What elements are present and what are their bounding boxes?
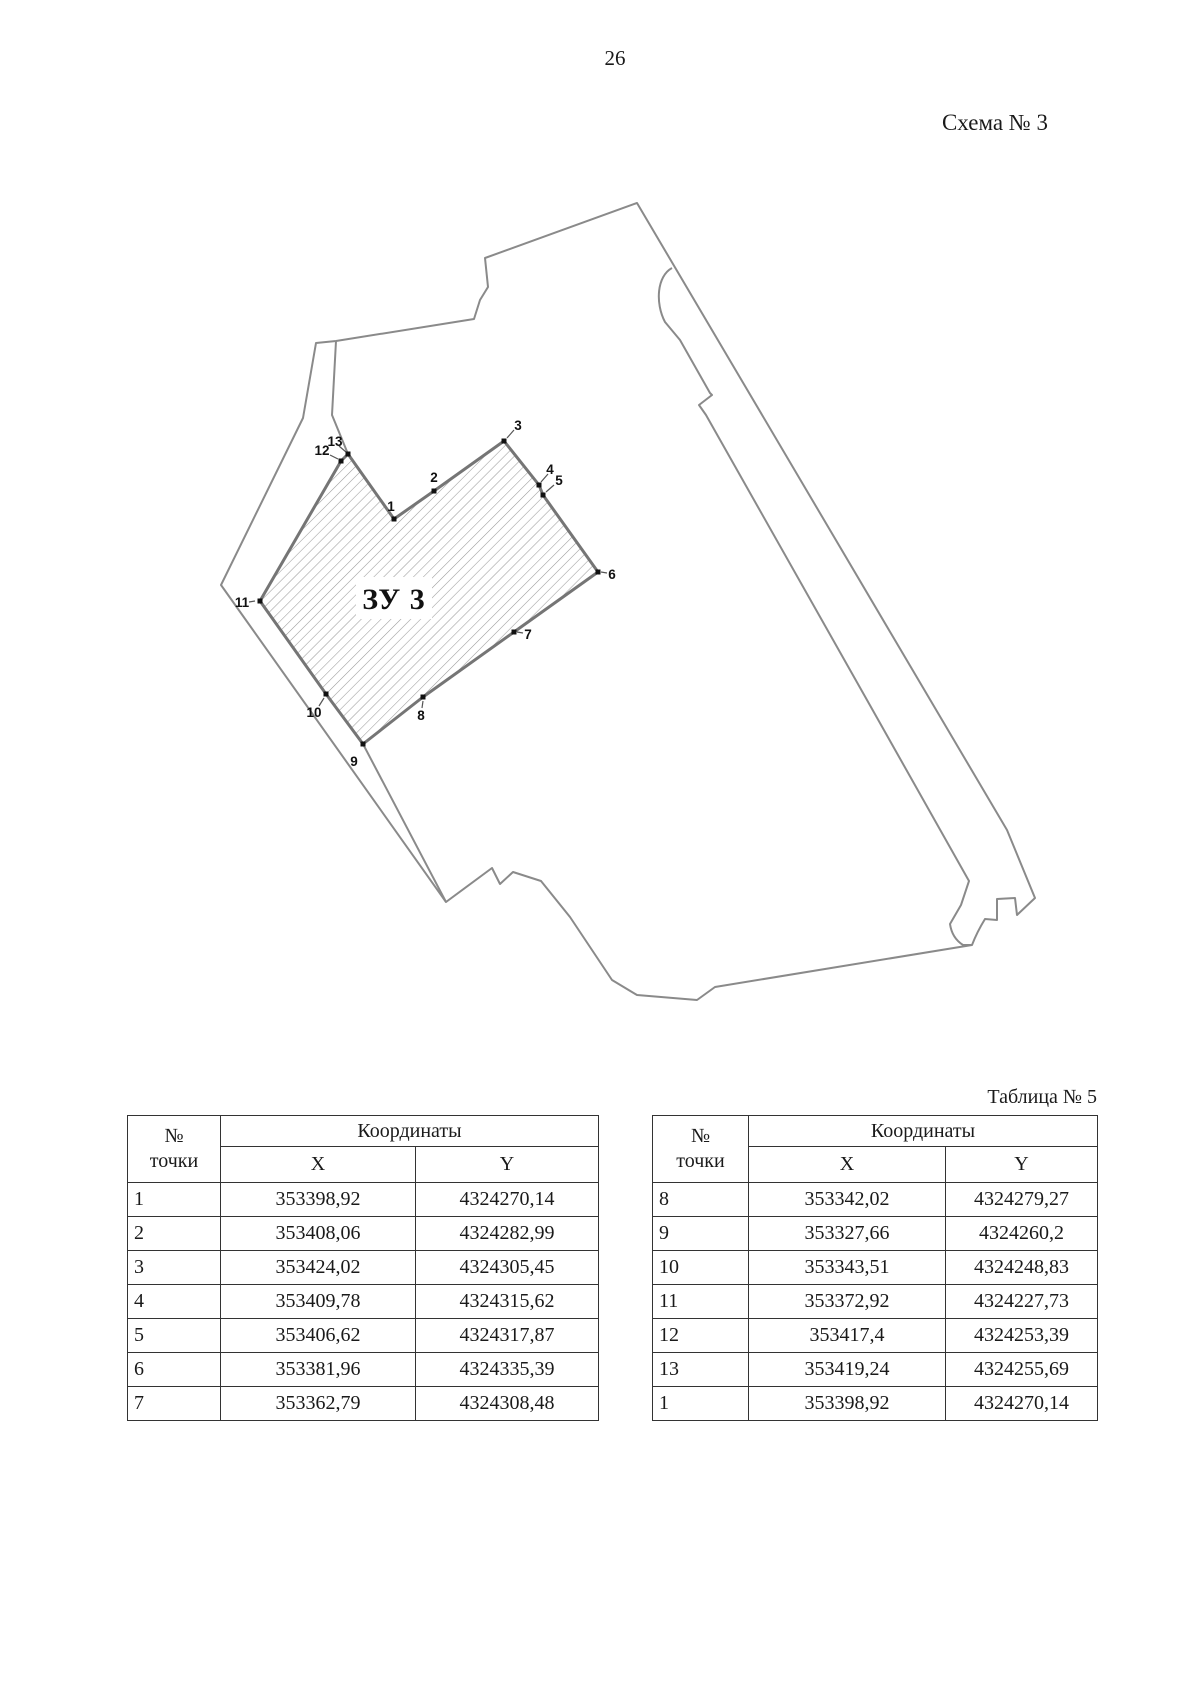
header-x: X — [221, 1147, 416, 1183]
cell-y: 4324317,87 — [416, 1319, 599, 1353]
table-row: 9353327,664324260,2 — [653, 1217, 1098, 1251]
table-body: 1353398,924324270,142353408,064324282,99… — [128, 1183, 599, 1421]
point-leader-line — [546, 485, 554, 492]
header-y: Y — [416, 1147, 599, 1183]
cell-y: 4324270,14 — [946, 1387, 1098, 1421]
cell-point-number: 8 — [653, 1183, 749, 1217]
cell-point-number: 1 — [653, 1387, 749, 1421]
point-marker-3 — [502, 439, 507, 444]
table-row: 6353381,964324335,39 — [128, 1353, 599, 1387]
point-label-9: 9 — [350, 754, 358, 769]
cell-point-number: 2 — [128, 1217, 221, 1251]
point-label-5: 5 — [555, 473, 563, 488]
point-marker-6 — [596, 570, 601, 575]
point-marker-1 — [392, 517, 397, 522]
table-row: 4353409,784324315,62 — [128, 1285, 599, 1319]
point-marker-11 — [258, 599, 263, 604]
cell-x: 353424,02 — [221, 1251, 416, 1285]
cell-x: 353406,62 — [221, 1319, 416, 1353]
cell-x: 353362,79 — [221, 1387, 416, 1421]
point-marker-8 — [421, 695, 426, 700]
point-marker-9 — [361, 742, 366, 747]
point-marker-13 — [346, 452, 351, 457]
point-leader-line — [249, 601, 255, 602]
cell-y: 4324282,99 — [416, 1217, 599, 1251]
header-coordinates: Координаты — [749, 1116, 1098, 1147]
cell-y: 4324270,14 — [416, 1183, 599, 1217]
table-row: 2353408,064324282,99 — [128, 1217, 599, 1251]
point-leader-line — [330, 455, 338, 459]
table-row: 10353343,514324248,83 — [653, 1251, 1098, 1285]
point-leader-line — [601, 572, 607, 573]
table-title: Таблица № 5 — [987, 1086, 1097, 1109]
cell-y: 4324308,48 — [416, 1387, 599, 1421]
cell-point-number: 10 — [653, 1251, 749, 1285]
cell-y: 4324305,45 — [416, 1251, 599, 1285]
cell-x: 353409,78 — [221, 1285, 416, 1319]
cell-point-number: 11 — [653, 1285, 749, 1319]
cell-y: 4324279,27 — [946, 1183, 1098, 1217]
cell-x: 353398,92 — [221, 1183, 416, 1217]
parcel-label: ЗУ 3 — [362, 583, 426, 616]
point-marker-5 — [541, 493, 546, 498]
cell-x: 353419,24 — [749, 1353, 946, 1387]
cell-point-number: 5 — [128, 1319, 221, 1353]
cell-y: 4324227,73 — [946, 1285, 1098, 1319]
table-header: №точкиКоординатыXY — [128, 1116, 599, 1183]
cell-x: 353408,06 — [221, 1217, 416, 1251]
table-row: 8353342,024324279,27 — [653, 1183, 1098, 1217]
point-leader-line — [422, 701, 423, 708]
point-label-1: 1 — [387, 499, 395, 514]
point-marker-12 — [339, 459, 344, 464]
cell-x: 353342,02 — [749, 1183, 946, 1217]
cell-point-number: 12 — [653, 1319, 749, 1353]
coordinates-table-right: №точкиКоординатыXY 8353342,024324279,279… — [652, 1115, 1098, 1421]
cadastral-scheme-map: ЗУ 3 12345678910111213 — [0, 0, 1200, 1010]
table-body: 8353342,024324279,279353327,664324260,21… — [653, 1183, 1098, 1421]
cell-point-number: 3 — [128, 1251, 221, 1285]
point-leader-line — [507, 430, 514, 438]
cell-x: 353327,66 — [749, 1217, 946, 1251]
table-header: №точкиКоординатыXY — [653, 1116, 1098, 1183]
point-label-6: 6 — [608, 567, 616, 582]
table-row: 1353398,924324270,14 — [128, 1183, 599, 1217]
point-label-3: 3 — [514, 418, 522, 433]
cell-point-number: 1 — [128, 1183, 221, 1217]
point-label-13: 13 — [327, 434, 343, 449]
cell-x: 353343,51 — [749, 1251, 946, 1285]
point-label-4: 4 — [546, 462, 554, 477]
cell-y: 4324335,39 — [416, 1353, 599, 1387]
cell-point-number: 13 — [653, 1353, 749, 1387]
cell-y: 4324248,83 — [946, 1251, 1098, 1285]
cell-x: 353381,96 — [221, 1353, 416, 1387]
table-row: 3353424,024324305,45 — [128, 1251, 599, 1285]
header-point-number: №точки — [128, 1116, 221, 1183]
point-marker-4 — [537, 483, 542, 488]
header-x: X — [749, 1147, 946, 1183]
point-leader-line — [517, 632, 523, 633]
cell-point-number: 7 — [128, 1387, 221, 1421]
cell-y: 4324315,62 — [416, 1285, 599, 1319]
coordinates-table-left: №точкиКоординатыXY 1353398,924324270,142… — [127, 1115, 599, 1421]
point-marker-10 — [324, 692, 329, 697]
cell-point-number: 6 — [128, 1353, 221, 1387]
point-label-2: 2 — [430, 470, 438, 485]
cell-x: 353417,4 — [749, 1319, 946, 1353]
table-row: 1353398,924324270,14 — [653, 1387, 1098, 1421]
table-row: 11353372,924324227,73 — [653, 1285, 1098, 1319]
cell-point-number: 4 — [128, 1285, 221, 1319]
point-label-10: 10 — [306, 705, 321, 720]
header-point-number: №точки — [653, 1116, 749, 1183]
table-row: 13353419,244324255,69 — [653, 1353, 1098, 1387]
table-row: 7353362,794324308,48 — [128, 1387, 599, 1421]
header-y: Y — [946, 1147, 1098, 1183]
cell-y: 4324253,39 — [946, 1319, 1098, 1353]
cell-x: 353398,92 — [749, 1387, 946, 1421]
point-marker-7 — [512, 630, 517, 635]
point-label-8: 8 — [417, 708, 425, 723]
cell-y: 4324260,2 — [946, 1217, 1098, 1251]
cell-y: 4324255,69 — [946, 1353, 1098, 1387]
point-label-11: 11 — [235, 595, 250, 610]
header-coordinates: Координаты — [221, 1116, 599, 1147]
document-page: 26 Схема № 3 ЗУ 3 12345678910111213 Табл… — [0, 0, 1200, 1698]
strip-inner-boundary-line — [659, 268, 972, 945]
cell-x: 353372,92 — [749, 1285, 946, 1319]
table-row: 5353406,624324317,87 — [128, 1319, 599, 1353]
point-marker-2 — [432, 489, 437, 494]
cell-point-number: 9 — [653, 1217, 749, 1251]
table-row: 12353417,44324253,39 — [653, 1319, 1098, 1353]
point-label-7: 7 — [524, 627, 532, 642]
